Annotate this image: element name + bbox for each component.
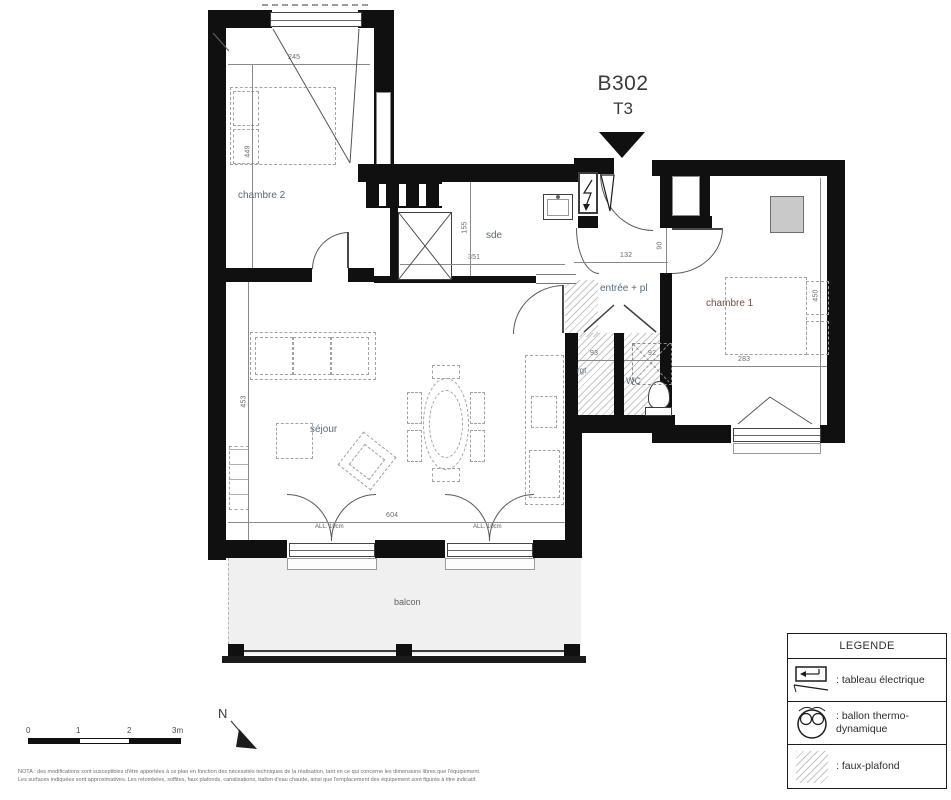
dim-chambre2-width: 245 <box>288 54 300 61</box>
wall <box>208 268 312 282</box>
legend-header: LEGENDE <box>788 634 946 659</box>
dim-sejour-width: 604 <box>386 512 398 519</box>
wall <box>660 176 672 228</box>
wall <box>375 540 445 558</box>
door-leaf <box>562 285 564 333</box>
door-leaf-wc <box>624 305 656 332</box>
dim-line <box>672 366 827 367</box>
wall <box>533 540 582 558</box>
window-chambre2 <box>270 12 362 27</box>
sofa-seat <box>331 337 369 375</box>
nota-line1: NOTA : des modifications sont susceptibl… <box>18 768 938 776</box>
wall <box>827 160 845 443</box>
dim-rgt-width: 93 <box>590 350 598 357</box>
wall <box>348 268 374 282</box>
sliding-door <box>536 274 576 284</box>
closet-chambre1 <box>672 176 700 216</box>
chair <box>432 468 460 482</box>
room-label-chambre1: chambre 1 <box>706 298 753 309</box>
window-above-dashed <box>262 4 368 6</box>
north-label: N <box>218 706 227 721</box>
north-needle <box>236 729 257 749</box>
wall <box>578 216 598 228</box>
chair <box>432 365 460 379</box>
dim-wc-width: 92 <box>648 350 656 357</box>
kitchen-appliance <box>529 450 560 498</box>
bed-chambre1 <box>725 277 807 355</box>
room-label-entree: entrée + pl <box>600 283 648 294</box>
floorplan-canvas: B302 T3 balcon <box>0 0 951 800</box>
legend-label: : tableau électrique <box>836 674 929 687</box>
dim-line <box>578 360 614 361</box>
door-leaf <box>347 232 349 268</box>
dim-line <box>624 360 660 361</box>
dim-line <box>820 178 821 425</box>
window-swing-line <box>738 397 770 424</box>
chair <box>470 430 485 462</box>
french-door-arc <box>445 494 490 541</box>
wall <box>208 540 287 558</box>
door-arc-entrance <box>600 174 653 231</box>
door-sill <box>287 558 377 570</box>
room-label-chambre2: chambre 2 <box>238 190 285 201</box>
dim-chambre1-height: 450 <box>813 289 820 301</box>
door-arc-sde <box>576 228 599 274</box>
room-label-balcon: balcon <box>394 597 421 607</box>
ventilated-wall-strip <box>366 182 442 208</box>
nota-text: NOTA : des modifications sont susceptibl… <box>18 768 938 784</box>
window-sill <box>733 443 821 454</box>
french-door-arc <box>287 494 332 541</box>
wall <box>820 425 845 443</box>
dim-line <box>574 262 668 263</box>
unit-title: B302 T3 <box>560 72 686 119</box>
room-label-rgt: rgt <box>577 366 586 375</box>
dim-entree-width: 132 <box>620 252 632 259</box>
scale-label-0: 0 <box>26 726 30 735</box>
wall <box>614 333 624 425</box>
legend-box: LEGENDE : tableau électrique <box>787 633 947 789</box>
duct-block <box>770 196 804 233</box>
thermodynamic-boiler-icon <box>788 703 836 743</box>
allege-label-left: ALL. 10cm <box>315 524 344 530</box>
coffee-table <box>276 423 313 459</box>
wall <box>700 176 710 218</box>
wall <box>565 425 582 558</box>
dim-sejour-height: 453 <box>241 395 248 407</box>
door-arc-sejour <box>513 285 564 334</box>
wall <box>390 204 398 280</box>
entrance-pointer-triangle <box>599 132 645 158</box>
chair <box>407 392 422 424</box>
wall <box>208 10 226 560</box>
electrical-panel-icon <box>788 663 836 697</box>
legend-row-electrical-panel: : tableau électrique <box>788 659 946 702</box>
unit-type: T3 <box>560 99 686 119</box>
dim-sde-height: 155 <box>462 221 469 233</box>
sink-basin <box>547 199 569 216</box>
toilet-tank <box>645 407 672 416</box>
electrical-panel <box>578 172 598 214</box>
kitchen-appliance <box>531 396 557 428</box>
room-label-sde: sde <box>486 230 502 241</box>
dim-chambre2-height: 449 <box>245 145 252 157</box>
pillow <box>233 91 259 126</box>
chair <box>407 430 422 462</box>
scale-label-1: 1 <box>76 726 80 735</box>
door-leaf <box>672 228 722 230</box>
allege-label-right: ALL. 10cm <box>473 524 502 530</box>
scalebar-segment <box>79 738 130 744</box>
legend-row-boiler: : ballon thermo-dynamique <box>788 702 946 745</box>
scalebar-segment <box>28 738 79 744</box>
french-door-left <box>289 543 375 557</box>
sofa-seat <box>255 337 293 375</box>
scalebar-segment <box>130 738 181 744</box>
legend-label: : ballon thermo-dynamique <box>836 710 946 736</box>
north-needle-tail <box>231 721 243 735</box>
unit-number: B302 <box>560 72 686 96</box>
dim-line <box>470 182 471 276</box>
dim-entree-door: 90 <box>657 241 664 249</box>
wall <box>652 425 731 443</box>
dim-line <box>228 522 565 523</box>
door-arc-chambre2 <box>312 232 349 269</box>
nota-line2: Les surfaces indiquées sont approximativ… <box>18 776 938 784</box>
toilet-bowl <box>648 381 670 409</box>
balcony-edge-band <box>222 656 586 663</box>
dim-line <box>400 264 565 265</box>
dim-line <box>248 282 249 540</box>
door-sill <box>445 558 535 570</box>
shelf-unit <box>229 446 249 510</box>
room-label-wc: WC <box>626 376 641 386</box>
scale-label-2: 2 <box>127 726 131 735</box>
dim-chambre1-width: 283 <box>738 356 750 363</box>
chair <box>470 392 485 424</box>
french-door-arc <box>331 494 376 541</box>
nightstand <box>806 321 829 355</box>
dim-line <box>228 64 370 65</box>
scale-label-3m: 3m <box>172 726 183 735</box>
window-chambre1 <box>733 428 821 442</box>
dining-table-inner <box>429 390 463 458</box>
french-door-right <box>447 543 533 557</box>
wall <box>358 164 580 182</box>
shower <box>398 212 452 280</box>
false-ceiling-zone <box>565 280 598 337</box>
dim-line <box>666 228 667 273</box>
sofa-seat <box>293 337 331 375</box>
wall <box>652 160 845 176</box>
room-label-sejour: séjour <box>310 424 337 435</box>
window-swing-line <box>770 397 812 424</box>
door-arc-chambre1 <box>672 228 723 274</box>
window-swing-line <box>350 29 359 163</box>
dim-line <box>252 64 253 268</box>
